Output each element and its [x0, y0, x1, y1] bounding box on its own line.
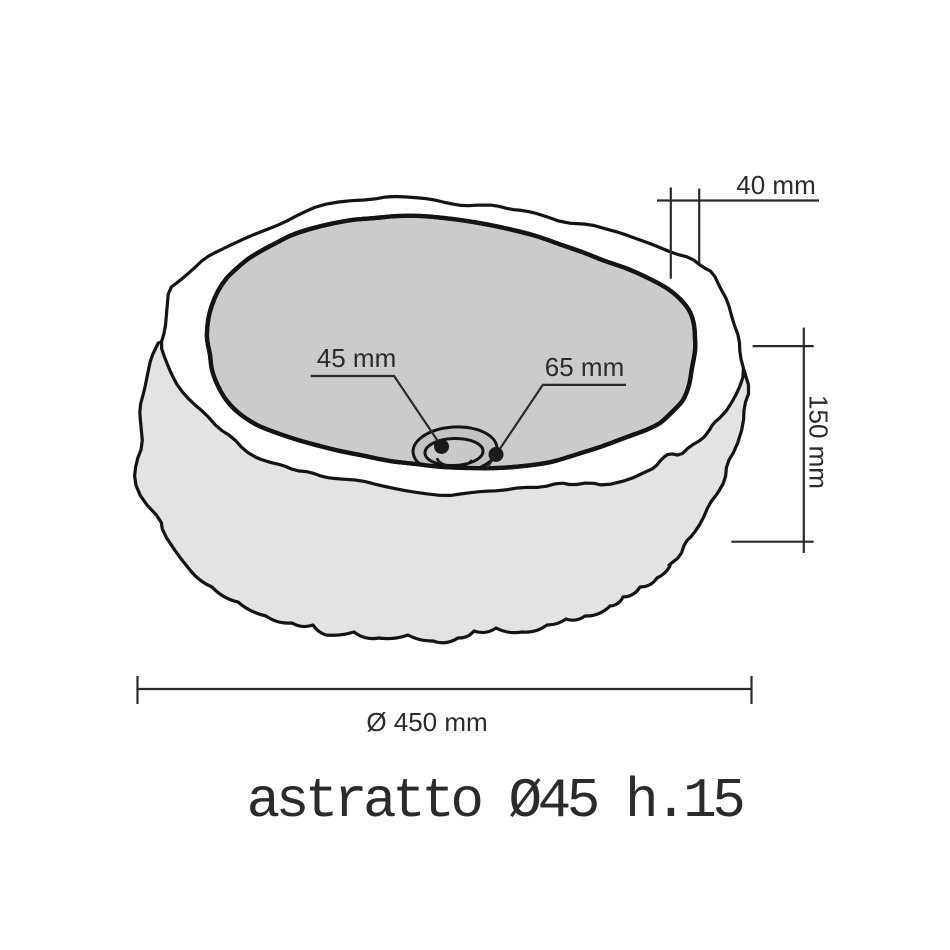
svg-text:astratto Ø45 h.15: astratto Ø45 h.15 [247, 769, 744, 833]
svg-text:150 mm: 150 mm [804, 395, 834, 489]
svg-text:40 mm: 40 mm [736, 170, 815, 200]
svg-text:Ø 450 mm: Ø 450 mm [366, 707, 487, 737]
svg-text:45 mm: 45 mm [317, 343, 396, 373]
svg-text:65 mm: 65 mm [545, 352, 624, 382]
